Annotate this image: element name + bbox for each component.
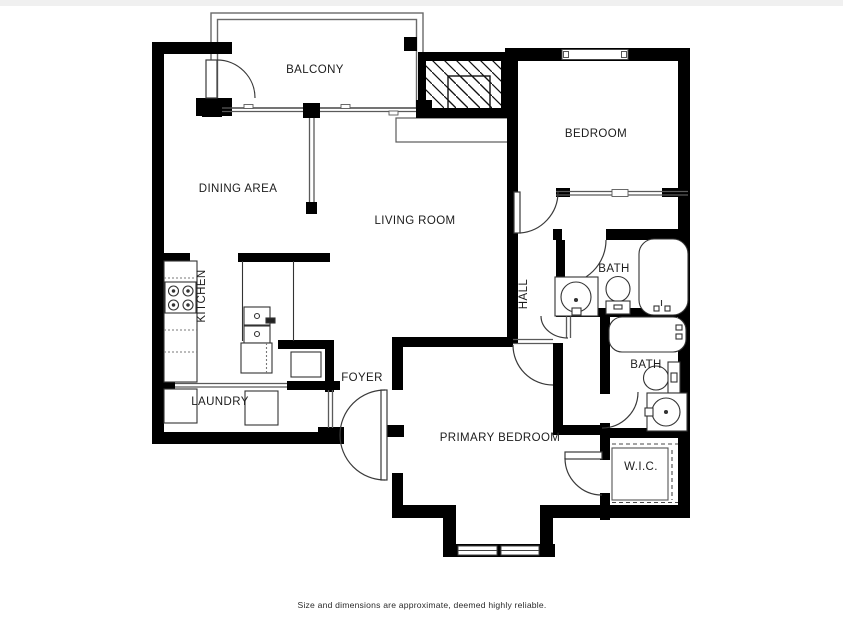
room-label-kitchen: KITCHEN — [196, 269, 208, 322]
toilet-icon — [606, 277, 630, 302]
bathtub-icon — [609, 317, 686, 352]
utility-closet — [291, 352, 321, 377]
bay-window-left — [458, 546, 497, 555]
fireplace-hearth-outline — [396, 118, 508, 142]
floor-plan-page: BALCONY BEDROOM DINING AREA LIVING ROOM … — [0, 0, 843, 632]
stove-icon — [165, 282, 196, 313]
dryer-icon — [245, 391, 278, 425]
fireplace-hatch — [422, 56, 506, 112]
bay-window-right — [501, 546, 539, 555]
floor-plan-drawing: BALCONY BEDROOM DINING AREA LIVING ROOM … — [0, 0, 843, 632]
room-label-dining-area: DINING AREA — [199, 183, 278, 195]
bathtub-icon — [639, 239, 688, 315]
room-label-balcony: BALCONY — [286, 64, 344, 76]
room-label-foyer: FOYER — [341, 372, 383, 384]
closet-shelving — [612, 444, 678, 503]
disclaimer-text: Size and dimensions are approximate, dee… — [298, 600, 547, 610]
room-label-primary-bedroom: PRIMARY BEDROOM — [440, 432, 561, 444]
room-label-bedroom: BEDROOM — [565, 128, 627, 140]
room-label-hall: HALL — [518, 279, 530, 310]
top-edge-band — [0, 0, 843, 6]
bedroom-window — [562, 50, 628, 60]
room-label-laundry: LAUNDRY — [191, 396, 249, 408]
room-label-living-room: LIVING ROOM — [374, 215, 455, 227]
room-label-bath-upper: BATH — [598, 263, 629, 275]
room-label-wic: W.I.C. — [624, 461, 658, 473]
room-label-bath-lower: BATH — [630, 359, 661, 371]
kitchen-counter — [164, 261, 197, 382]
